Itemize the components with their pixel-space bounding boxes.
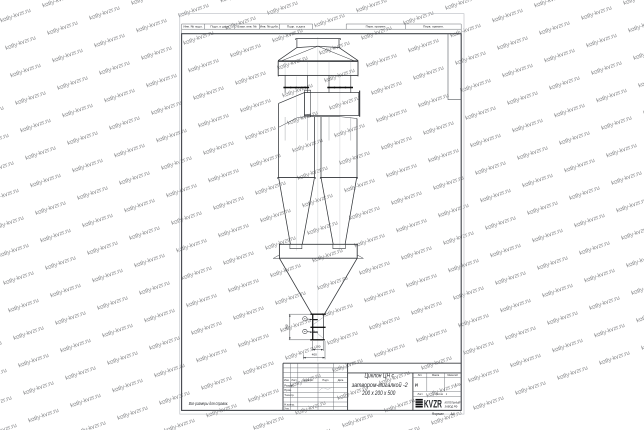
svg-text:kotly-kvzr.ru: kotly-kvzr.ru	[366, 53, 398, 70]
svg-text:kotly-kvzr.ru: kotly-kvzr.ru	[527, 200, 559, 217]
svg-text:kotly-kvzr.ru: kotly-kvzr.ru	[42, 0, 74, 9]
svg-text:kotly-kvzr.ru: kotly-kvzr.ru	[599, 350, 631, 367]
svg-text:kotly-kvzr.ru: kotly-kvzr.ru	[297, 165, 329, 182]
svg-text:kotly-kvzr.ru: kotly-kvzr.ru	[146, 73, 178, 90]
svg-text:kotly-kvzr.ru: kotly-kvzr.ru	[151, 100, 183, 117]
svg-text:kotly-kvzr.ru: kotly-kvzr.ru	[5, 35, 37, 52]
svg-text:kotly-kvzr.ru: kotly-kvzr.ru	[490, 243, 522, 260]
svg-text:kotly-kvzr.ru: kotly-kvzr.ru	[287, 110, 319, 127]
svg-text:kotly-kvzr.ru: kotly-kvzr.ru	[109, 115, 141, 132]
svg-text:kotly-kvzr.ru: kotly-kvzr.ru	[515, 380, 547, 397]
svg-text:kotly-kvzr.ru: kotly-kvzr.ru	[70, 393, 102, 410]
svg-text:kotly-kvzr.ru: kotly-kvzr.ru	[339, 150, 371, 167]
svg-text:kotly-kvzr.ru: kotly-kvzr.ru	[314, 13, 346, 30]
svg-text:kotly-kvzr.ru: kotly-kvzr.ru	[57, 75, 89, 92]
svg-text:kotly-kvzr.ru: kotly-kvzr.ru	[181, 265, 213, 282]
svg-text:kotly-kvzr.ru: kotly-kvzr.ru	[349, 205, 381, 222]
svg-text:kotly-kvzr.ru: kotly-kvzr.ru	[154, 363, 186, 380]
svg-text:Масштаб: Масштаб	[447, 374, 458, 377]
svg-text:kotly-kvzr.ru: kotly-kvzr.ru	[35, 200, 67, 217]
svg-text:kotly-kvzr.ru: kotly-kvzr.ru	[517, 145, 549, 162]
svg-text:kotly-kvzr.ru: kotly-kvzr.ru	[369, 315, 401, 332]
svg-text:kotly-kvzr.ru: kotly-kvzr.ru	[60, 338, 92, 355]
svg-text:kotly-kvzr.ru: kotly-kvzr.ru	[164, 418, 196, 430]
svg-text:kotly-kvzr.ru: kotly-kvzr.ru	[616, 198, 644, 215]
svg-text:kotly-kvzr.ru: kotly-kvzr.ru	[40, 228, 72, 245]
svg-text:kotly-kvzr.ru: kotly-kvzr.ru	[453, 285, 485, 302]
svg-text:kotly-kvzr.ru: kotly-kvzr.ru	[433, 175, 465, 192]
svg-text:Подп. и дата: Подп. и дата	[287, 25, 306, 29]
svg-text:kotly-kvzr.ru: kotly-kvzr.ru	[75, 420, 107, 430]
svg-text:kotly-kvzr.ru: kotly-kvzr.ru	[223, 250, 255, 267]
svg-text:Перв. примен.: Перв. примен.	[423, 25, 444, 29]
svg-text:kotly-kvzr.ru: kotly-kvzr.ru	[240, 98, 272, 115]
svg-text:kotly-kvzr.ru: kotly-kvzr.ru	[327, 330, 359, 347]
svg-text:kotly-kvzr.ru: kotly-kvzr.ru	[317, 275, 349, 292]
svg-text:kotly-kvzr.ru: kotly-kvzr.ru	[176, 238, 208, 255]
svg-text:kotly-kvzr.ru: kotly-kvzr.ru	[426, 383, 458, 400]
svg-text:1:20: 1:20	[455, 383, 461, 387]
svg-text:kotly-kvzr.ru: kotly-kvzr.ru	[542, 283, 574, 300]
svg-text:300: 300	[284, 324, 288, 329]
svg-text:kotly-kvzr.ru: kotly-kvzr.ru	[411, 300, 443, 317]
svg-text:kotly-kvzr.ru: kotly-kvzr.ru	[77, 185, 109, 202]
svg-text:kotly-kvzr.ru: kotly-kvzr.ru	[87, 240, 119, 257]
svg-text:kotly-kvzr.ru: kotly-kvzr.ru	[230, 43, 262, 60]
svg-text:kotly-kvzr.ru: kotly-kvzr.ru	[141, 45, 173, 62]
svg-text:kotly-kvzr.ru: kotly-kvzr.ru	[549, 75, 581, 92]
svg-text:kotly-kvzr.ru: kotly-kvzr.ru	[594, 323, 626, 340]
svg-text:kotly-kvzr.ru: kotly-kvzr.ru	[396, 218, 428, 235]
svg-text:kotly-kvzr.ru: kotly-kvzr.ru	[114, 143, 146, 160]
svg-text:Дата: Дата	[338, 379, 344, 382]
svg-text:Разраб.: Разраб.	[284, 383, 294, 387]
svg-text:kotly-kvzr.ru: kotly-kvzr.ru	[267, 0, 299, 17]
svg-text:kotly-kvzr.ru: kotly-kvzr.ru	[250, 153, 282, 170]
svg-text:kotly-kvzr.ru: kotly-kvzr.ru	[131, 0, 163, 7]
svg-text:kotly-kvzr.ru: kotly-kvzr.ru	[0, 188, 20, 205]
svg-text:Пров.: Пров.	[284, 388, 292, 392]
svg-text:kotly-kvzr.ru: kotly-kvzr.ru	[579, 240, 611, 257]
svg-text:Т.контр.: Т.контр.	[284, 393, 294, 397]
svg-text:kotly-kvzr.ru: kotly-kvzr.ru	[117, 405, 149, 422]
svg-text:kotly-kvzr.ru: kotly-kvzr.ru	[460, 78, 492, 95]
svg-text:kotly-kvzr.ru: kotly-kvzr.ru	[218, 223, 250, 240]
svg-text:200 х 200 х 500: 200 х 200 х 500	[362, 391, 396, 397]
svg-text:kotly-kvzr.ru: kotly-kvzr.ru	[245, 125, 277, 142]
svg-text:kotly-kvzr.ru: kotly-kvzr.ru	[539, 20, 571, 37]
svg-text:kotly-kvzr.ru: kotly-kvzr.ru	[0, 8, 32, 25]
svg-text:kotly-kvzr.ru: kotly-kvzr.ru	[416, 328, 448, 345]
svg-text:kotly-kvzr.ru: kotly-kvzr.ru	[178, 3, 210, 20]
svg-text:kotly-kvzr.ru: kotly-kvzr.ru	[534, 0, 566, 9]
svg-text:Формат: Формат	[432, 412, 444, 416]
svg-text:kotly-kvzr.ru: kotly-kvzr.ru	[559, 130, 591, 147]
svg-text:№ докум.: № докум.	[302, 379, 313, 382]
svg-text:ЗАВОД РФ: ЗАВОД РФ	[445, 406, 458, 409]
svg-text:kotly-kvzr.ru: kotly-kvzr.ru	[413, 65, 445, 82]
svg-text:kotly-kvzr.ru: kotly-kvzr.ru	[389, 425, 421, 430]
svg-text:kotly-kvzr.ru: kotly-kvzr.ru	[334, 123, 366, 140]
svg-text:Масса: Масса	[432, 374, 440, 377]
svg-text:kotly-kvzr.ru: kotly-kvzr.ru	[611, 170, 643, 187]
svg-text:kotly-kvzr.ru: kotly-kvzr.ru	[248, 388, 280, 405]
svg-text:kotly-kvzr.ru: kotly-kvzr.ru	[253, 415, 285, 430]
svg-text:kotly-kvzr.ru: kotly-kvzr.ru	[621, 225, 644, 242]
svg-text:kotly-kvzr.ru: kotly-kvzr.ru	[136, 18, 168, 35]
svg-text:kotly-kvzr.ru: kotly-kvzr.ru	[156, 128, 188, 145]
svg-text:kotly-kvzr.ru: kotly-kvzr.ru	[0, 160, 15, 177]
svg-text:kotly-kvzr.ru: kotly-kvzr.ru	[406, 273, 438, 290]
svg-text:kotly-kvzr.ru: kotly-kvzr.ru	[569, 185, 601, 202]
svg-text:kotly-kvzr.ru: kotly-kvzr.ru	[208, 168, 240, 185]
svg-text:kotly-kvzr.ru: kotly-kvzr.ru	[159, 390, 191, 407]
svg-text:kotly-kvzr.ru: kotly-kvzr.ru	[186, 293, 218, 310]
svg-text:kotly-kvzr.ru: kotly-kvzr.ru	[220, 0, 252, 4]
svg-text:kotly-kvzr.ru: kotly-kvzr.ru	[13, 325, 45, 342]
svg-text:kotly-kvzr.ru: kotly-kvzr.ru	[507, 90, 539, 107]
svg-text:Лист: Лист	[291, 379, 297, 382]
svg-text:kotly-kvzr.ru: kotly-kvzr.ru	[129, 225, 161, 242]
svg-text:kotly-kvzr.ru: kotly-kvzr.ru	[631, 280, 644, 297]
svg-text:kotly-kvzr.ru: kotly-kvzr.ru	[228, 278, 260, 295]
svg-text:kotly-kvzr.ru: kotly-kvzr.ru	[505, 325, 537, 342]
svg-text:kotly-kvzr.ru: kotly-kvzr.ru	[191, 320, 223, 337]
svg-text:kotly-kvzr.ru: kotly-kvzr.ru	[628, 18, 644, 35]
svg-text:kotly-kvzr.ru: kotly-kvzr.ru	[277, 55, 309, 72]
svg-text:kotly-kvzr.ru: kotly-kvzr.ru	[238, 333, 270, 350]
svg-text:kotly-kvzr.ru: kotly-kvzr.ru	[312, 248, 344, 265]
svg-text:kotly-kvzr.ru: kotly-kvzr.ru	[532, 228, 564, 245]
svg-text:kotly-kvzr.ru: kotly-kvzr.ru	[480, 188, 512, 205]
svg-text:kotly-kvzr.ru: kotly-kvzr.ru	[492, 8, 524, 25]
svg-text:kotly-kvzr.ru: kotly-kvzr.ru	[15, 90, 47, 107]
svg-text:kotly-kvzr.ru: kotly-kvzr.ru	[23, 380, 55, 397]
svg-text:kotly-kvzr.ru: kotly-kvzr.ru	[233, 305, 265, 322]
svg-text:kotly-kvzr.ru: kotly-kvzr.ru	[104, 88, 136, 105]
svg-text:100: 100	[315, 344, 320, 348]
svg-text:Лист: Лист	[418, 393, 424, 396]
svg-text:kotly-kvzr.ru: kotly-kvzr.ru	[67, 130, 99, 147]
svg-text:Утв.: Утв.	[284, 407, 290, 411]
svg-text:kotly-kvzr.ru: kotly-kvzr.ru	[235, 70, 267, 87]
svg-text:kotly-kvzr.ru: kotly-kvzr.ru	[638, 73, 644, 90]
svg-text:kotly-kvzr.ru: kotly-kvzr.ru	[50, 283, 82, 300]
svg-text:Н.контр.: Н.контр.	[284, 402, 295, 406]
svg-text:kotly-kvzr.ru: kotly-kvzr.ru	[112, 378, 144, 395]
svg-text:kotly-kvzr.ru: kotly-kvzr.ru	[455, 50, 487, 67]
svg-text:1: 1	[446, 393, 448, 396]
svg-text:kotly-kvzr.ru: kotly-kvzr.ru	[376, 108, 408, 125]
svg-text:kotly-kvzr.ru: kotly-kvzr.ru	[408, 38, 440, 55]
svg-text:kotly-kvzr.ru: kotly-kvzr.ru	[384, 398, 416, 415]
svg-text:kotly-kvzr.ru: kotly-kvzr.ru	[606, 143, 638, 160]
svg-text:kotly-kvzr.ru: kotly-kvzr.ru	[445, 0, 477, 12]
svg-text:Подп.: Подп.	[322, 379, 329, 382]
svg-text:Взам. инв. №: Взам. инв. №	[237, 25, 257, 29]
svg-text:kotly-kvzr.ru: kotly-kvzr.ru	[589, 295, 621, 312]
svg-text:kotly-kvzr.ru: kotly-kvzr.ru	[28, 408, 60, 425]
svg-text:kotly-kvzr.ru: kotly-kvzr.ru	[359, 260, 391, 277]
svg-text:kotly-kvzr.ru: kotly-kvzr.ru	[473, 395, 505, 412]
svg-text:kotly-kvzr.ru: kotly-kvzr.ru	[544, 48, 576, 65]
svg-text:kotly-kvzr.ru: kotly-kvzr.ru	[0, 340, 3, 357]
svg-text:kotly-kvzr.ru: kotly-kvzr.ru	[497, 35, 529, 52]
svg-text:kotly-kvzr.ru: kotly-kvzr.ru	[265, 235, 297, 252]
svg-text:kotly-kvzr.ru: kotly-kvzr.ru	[124, 198, 156, 215]
svg-text:kotly-kvzr.ru: kotly-kvzr.ru	[0, 368, 8, 385]
svg-text:kotly-kvzr.ru: kotly-kvzr.ru	[89, 5, 121, 22]
svg-text:kotly-kvzr.ru: kotly-kvzr.ru	[72, 158, 104, 175]
svg-text:kotly-kvzr.ru: kotly-kvzr.ru	[512, 118, 544, 135]
svg-text:kotly-kvzr.ru: kotly-kvzr.ru	[107, 350, 139, 367]
svg-text:kotly-kvzr.ru: kotly-kvzr.ru	[626, 253, 644, 270]
svg-text:Инв. № дубл.: Инв. № дубл.	[260, 25, 279, 29]
svg-text:kotly-kvzr.ru: kotly-kvzr.ru	[623, 0, 644, 7]
svg-text:затвором-мигалкой -2: затвором-мигалкой -2	[351, 382, 408, 389]
svg-text:kotly-kvzr.ru: kotly-kvzr.ru	[356, 0, 388, 14]
svg-text:kotly-kvzr.ru: kotly-kvzr.ru	[552, 338, 584, 355]
svg-text:kotly-kvzr.ru: kotly-kvzr.ru	[475, 160, 507, 177]
svg-text:kotly-kvzr.ru: kotly-kvzr.ru	[342, 413, 374, 430]
svg-text:kotly-kvzr.ru: kotly-kvzr.ru	[371, 80, 403, 97]
svg-text:kotly-kvzr.ru: kotly-kvzr.ru	[198, 113, 230, 130]
svg-text:kotly-kvzr.ru: kotly-kvzr.ru	[584, 268, 616, 285]
svg-text:kotly-kvzr.ru: kotly-kvzr.ru	[25, 145, 57, 162]
svg-text:kotly-kvzr.ru: kotly-kvzr.ru	[82, 213, 114, 230]
svg-text:kotly-kvzr.ru: kotly-kvzr.ru	[139, 280, 171, 297]
svg-text:kotly-kvzr.ru: kotly-kvzr.ru	[386, 163, 418, 180]
svg-text:Перв. примен.: Перв. примен.	[366, 25, 387, 29]
svg-text:kotly-kvzr.ru: kotly-kvzr.ru	[381, 135, 413, 152]
svg-text:kotly-kvzr.ru: kotly-kvzr.ru	[586, 33, 618, 50]
svg-text:kotly-kvzr.ru: kotly-kvzr.ru	[99, 60, 131, 77]
svg-text:kotly-kvzr.ru: kotly-kvzr.ru	[465, 105, 497, 122]
svg-text:kotly-kvzr.ru: kotly-kvzr.ru	[213, 195, 245, 212]
svg-text:kotly-kvzr.ru: kotly-kvzr.ru	[574, 213, 606, 230]
svg-text:kotly-kvzr.ru: kotly-kvzr.ru	[522, 173, 554, 190]
svg-text:kotly-kvzr.ru: kotly-kvzr.ru	[30, 173, 62, 190]
svg-text:kotly-kvzr.ru: kotly-kvzr.ru	[443, 230, 475, 247]
svg-text:kotly-kvzr.ru: kotly-kvzr.ru	[203, 140, 235, 157]
svg-text:kotly-kvzr.ru: kotly-kvzr.ru	[52, 48, 84, 65]
svg-text:Листов: Листов	[435, 393, 443, 396]
svg-text:kotly-kvzr.ru: kotly-kvzr.ru	[270, 263, 302, 280]
svg-text:kotly-kvzr.ru: kotly-kvzr.ru	[161, 155, 193, 172]
svg-text:kotly-kvzr.ru: kotly-kvzr.ru	[0, 105, 5, 122]
svg-text:kotly-kvzr.ru: kotly-kvzr.ru	[102, 323, 134, 340]
svg-text:kotly-kvzr.ru: kotly-kvzr.ru	[62, 103, 94, 120]
svg-text:kotly-kvzr.ru: kotly-kvzr.ru	[171, 210, 203, 227]
svg-text:kotly-kvzr.ru: kotly-kvzr.ru	[47, 20, 79, 37]
svg-text:kotly-kvzr.ru: kotly-kvzr.ru	[307, 220, 339, 237]
svg-text:kotly-kvzr.ru: kotly-kvzr.ru	[193, 85, 225, 102]
svg-text:kotly-kvzr.ru: kotly-kvzr.ru	[485, 215, 517, 232]
svg-text:kotly-kvzr.ru: kotly-kvzr.ru	[581, 5, 613, 22]
svg-text:kotly-kvzr.ru: kotly-kvzr.ru	[94, 33, 126, 50]
svg-text:kotly-kvzr.ru: kotly-kvzr.ru	[423, 120, 455, 137]
svg-text:kotly-kvzr.ru: kotly-kvzr.ru	[20, 118, 52, 135]
svg-text:kotly-kvzr.ru: kotly-kvzr.ru	[364, 288, 396, 305]
svg-text:kotly-kvzr.ru: kotly-kvzr.ru	[0, 243, 30, 260]
svg-text:kotly-kvzr.ru: kotly-kvzr.ru	[329, 95, 361, 112]
svg-text:kotly-kvzr.ru: kotly-kvzr.ru	[391, 190, 423, 207]
svg-text:kotly-kvzr.ru: kotly-kvzr.ru	[309, 0, 341, 2]
svg-text:kotly-kvzr.ru: kotly-kvzr.ru	[596, 88, 628, 105]
svg-text:kotly-kvzr.ru: kotly-kvzr.ru	[92, 268, 124, 285]
svg-text:kotly-kvzr.ru: kotly-kvzr.ru	[601, 115, 633, 132]
svg-text:kotly-kvzr.ru: kotly-kvzr.ru	[243, 360, 275, 377]
svg-text:kotly-kvzr.ru: kotly-kvzr.ru	[45, 255, 77, 272]
svg-text:kotly-kvzr.ru: kotly-kvzr.ru	[149, 335, 181, 352]
svg-text:kotly-kvzr.ru: kotly-kvzr.ru	[468, 368, 500, 385]
svg-text:kotly-kvzr.ru: kotly-kvzr.ru	[418, 93, 450, 110]
svg-text:kotly-kvzr.ru: kotly-kvzr.ru	[0, 395, 13, 412]
svg-text:Лит.: Лит.	[418, 374, 423, 377]
svg-text:kotly-kvzr.ru: kotly-kvzr.ru	[502, 63, 534, 80]
svg-text:И: И	[415, 383, 418, 388]
svg-text:kotly-kvzr.ru: kotly-kvzr.ru	[463, 340, 495, 357]
svg-text:Инв. № подл.: Инв. № подл.	[183, 25, 202, 29]
svg-text:kotly-kvzr.ru: kotly-kvzr.ru	[183, 30, 215, 47]
svg-text:kotly-kvzr.ru: kotly-kvzr.ru	[495, 270, 527, 287]
svg-text:kotly-kvzr.ru: kotly-kvzr.ru	[564, 158, 596, 175]
svg-text:kotly-kvzr.ru: kotly-kvzr.ru	[428, 148, 460, 165]
svg-text:kotly-kvzr.ru: kotly-kvzr.ru	[344, 178, 376, 195]
svg-text:kotly-kvzr.ru: kotly-kvzr.ru	[134, 253, 166, 270]
svg-text:kotly-kvzr.ru: kotly-kvzr.ru	[591, 60, 623, 77]
svg-text:kotly-kvzr.ru: kotly-kvzr.ru	[272, 28, 304, 45]
svg-text:kotly-kvzr.ru: kotly-kvzr.ru	[55, 310, 87, 327]
svg-text:kotly-kvzr.ru: kotly-kvzr.ru	[8, 298, 40, 315]
svg-text:kotly-kvzr.ru: kotly-kvzr.ru	[0, 215, 25, 232]
svg-text:kotly-kvzr.ru: kotly-kvzr.ru	[641, 335, 644, 352]
svg-text:kotly-kvzr.ru: kotly-kvzr.ru	[10, 63, 42, 80]
svg-text:kotly-kvzr.ru: kotly-kvzr.ru	[374, 343, 406, 360]
svg-text:Изм.: Изм.	[284, 379, 290, 382]
svg-text:Все размеры для справок.: Все размеры для справок.	[189, 401, 229, 406]
svg-text:kotly-kvzr.ru: kotly-kvzr.ru	[65, 365, 97, 382]
svg-text:kotly-kvzr.ru: kotly-kvzr.ru	[450, 23, 482, 40]
svg-text:kotly-kvzr.ru: kotly-kvzr.ru	[282, 83, 314, 100]
svg-text:Циклон ЦН с: Циклон ЦН с	[364, 373, 394, 379]
svg-text:kotly-kvzr.ru: kotly-kvzr.ru	[537, 255, 569, 272]
svg-text:kotly-kvzr.ru: kotly-kvzr.ru	[18, 353, 50, 370]
svg-text:kotly-kvzr.ru: kotly-kvzr.ru	[510, 353, 542, 370]
svg-text:kotly-kvzr.ru: kotly-kvzr.ru	[354, 233, 386, 250]
svg-text:kotly-kvzr.ru: kotly-kvzr.ru	[3, 270, 35, 287]
svg-text:kotly-kvzr.ru: kotly-kvzr.ru	[633, 45, 644, 62]
svg-text:kotly-kvzr.ru: kotly-kvzr.ru	[500, 298, 532, 315]
svg-text:kotly-kvzr.ru: kotly-kvzr.ru	[188, 58, 220, 75]
svg-text:kotly-kvzr.ru: kotly-kvzr.ru	[0, 423, 18, 430]
svg-text:kotly-kvzr.ru: kotly-kvzr.ru	[470, 133, 502, 150]
svg-text:kotly-kvzr.ru: kotly-kvzr.ru	[275, 290, 307, 307]
svg-text:kotly-kvzr.ru: kotly-kvzr.ru	[196, 348, 228, 365]
svg-text:КОТЕЛЬНЫЙ: КОТЕЛЬНЫЙ	[445, 402, 461, 405]
svg-text:kotly-kvzr.ru: kotly-kvzr.ru	[636, 308, 644, 325]
svg-text:kotly-kvzr.ru: kotly-kvzr.ru	[201, 375, 233, 392]
svg-text:kotly-kvzr.ru: kotly-kvzr.ru	[0, 133, 10, 150]
svg-text:KVZR: KVZR	[424, 398, 442, 410]
svg-text:kotly-kvzr.ru: kotly-kvzr.ru	[97, 295, 129, 312]
svg-text:kotly-kvzr.ru: kotly-kvzr.ru	[557, 365, 589, 382]
svg-text:kotly-kvzr.ru: kotly-kvzr.ru	[144, 308, 176, 325]
svg-text:А4: А4	[451, 412, 455, 416]
svg-text:400: 400	[312, 352, 317, 356]
svg-text:kotly-kvzr.ru: kotly-kvzr.ru	[401, 245, 433, 262]
svg-text:kotly-kvzr.ru: kotly-kvzr.ru	[458, 313, 490, 330]
svg-text:kotly-kvzr.ru: kotly-kvzr.ru	[119, 170, 151, 187]
svg-text:Подп. и дата: Подп. и дата	[210, 25, 229, 29]
svg-text:kotly-kvzr.ru: kotly-kvzr.ru	[260, 208, 292, 225]
svg-text:kotly-kvzr.ru: kotly-kvzr.ru	[438, 203, 470, 220]
svg-text:kotly-kvzr.ru: kotly-kvzr.ru	[554, 103, 586, 120]
svg-text:kotly-kvzr.ru: kotly-kvzr.ru	[547, 310, 579, 327]
